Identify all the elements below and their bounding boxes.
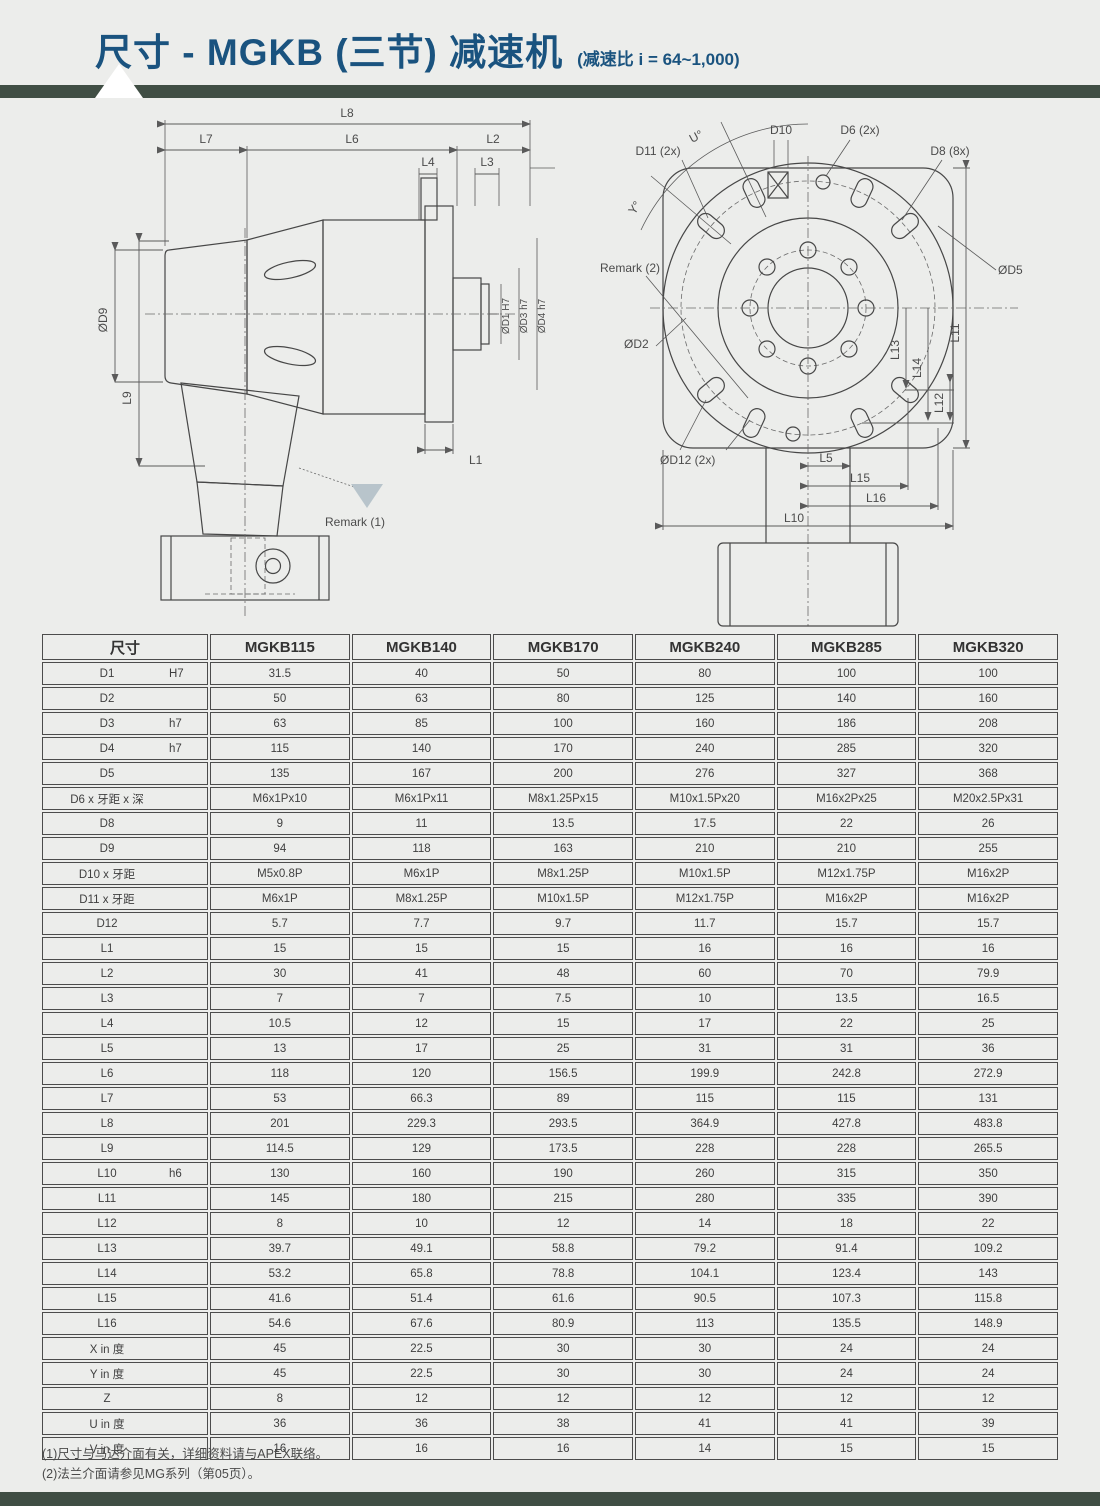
table-row: L10h6130160190260315350 — [42, 1162, 1058, 1185]
value-cell: 107.3 — [777, 1287, 917, 1310]
value-cell: 24 — [777, 1362, 917, 1385]
dim-label: L7 — [45, 1093, 169, 1105]
value-cell: 483.8 — [918, 1112, 1058, 1135]
value-cell: 390 — [918, 1187, 1058, 1210]
dim-label-l1: L1 — [469, 453, 483, 467]
dim-label-d3: ØD3 h7 — [519, 298, 530, 333]
remark2-label: Remark (2) — [600, 261, 660, 275]
footer-accent-bar — [0, 1492, 1100, 1506]
value-cell: 210 — [635, 837, 775, 860]
table-row: D125.77.79.711.715.715.7 — [42, 912, 1058, 935]
white-triangle-marker — [95, 64, 143, 98]
angle-label-y: Y° — [625, 198, 644, 217]
value-cell: 16 — [777, 937, 917, 960]
dim-label: Y in 度 — [45, 1366, 169, 1382]
dim-label: D11 x 牙距 — [45, 891, 169, 907]
callout-d2: ØD2 — [624, 337, 649, 351]
value-cell: 16.5 — [918, 987, 1058, 1010]
dim-label: D3 — [45, 718, 169, 730]
value-cell: 41 — [777, 1412, 917, 1435]
dim-label: U in 度 — [45, 1416, 169, 1432]
value-cell: 30 — [635, 1362, 775, 1385]
value-cell: 130 — [210, 1162, 350, 1185]
dim-label-l7: L7 — [199, 132, 213, 146]
value-cell: 14 — [635, 1437, 775, 1460]
dim-label: L11 — [45, 1193, 169, 1205]
value-cell: 285 — [777, 737, 917, 760]
dim-label-l10: L10 — [784, 511, 804, 525]
value-cell: 24 — [918, 1337, 1058, 1360]
dim-label-l8: L8 — [340, 106, 354, 120]
value-cell: 94 — [210, 837, 350, 860]
value-cell: 186 — [777, 712, 917, 735]
value-cell: 131 — [918, 1087, 1058, 1110]
value-cell: 135.5 — [777, 1312, 917, 1335]
value-cell: 118 — [210, 1062, 350, 1085]
table-row: X in 度4522.530302424 — [42, 1337, 1058, 1360]
value-cell: 12 — [918, 1387, 1058, 1410]
value-cell: 89 — [493, 1087, 633, 1110]
value-cell: 163 — [493, 837, 633, 860]
value-cell: 8 — [210, 1387, 350, 1410]
dim-name-cell: L2 — [42, 962, 208, 985]
value-cell: 11 — [352, 812, 492, 835]
value-cell: 30 — [493, 1337, 633, 1360]
value-cell: 22 — [777, 812, 917, 835]
dim-label: L3 — [45, 993, 169, 1005]
value-cell: 16 — [352, 1437, 492, 1460]
value-cell: 120 — [352, 1062, 492, 1085]
remark1-triangle-icon — [351, 484, 383, 508]
dim-label-l16: L16 — [866, 491, 886, 505]
value-cell: 80 — [635, 662, 775, 685]
dim-label: L8 — [45, 1118, 169, 1130]
value-cell: 350 — [918, 1162, 1058, 1185]
dim-label: D1 — [45, 668, 169, 680]
value-cell: 170 — [493, 737, 633, 760]
dim-label: L2 — [45, 968, 169, 980]
value-cell: M20x2.5Px31 — [918, 787, 1058, 810]
value-cell: M8x1.25Px15 — [493, 787, 633, 810]
value-cell: 17 — [352, 1037, 492, 1060]
value-cell: 327 — [777, 762, 917, 785]
value-cell: 201 — [210, 1112, 350, 1135]
value-cell: 200 — [493, 762, 633, 785]
table-row: L5131725313136 — [42, 1037, 1058, 1060]
dim-label: D8 — [45, 818, 169, 830]
value-cell: 255 — [918, 837, 1058, 860]
value-cell: M6x1Px11 — [352, 787, 492, 810]
value-cell: 53.2 — [210, 1262, 350, 1285]
value-cell: 242.8 — [777, 1062, 917, 1085]
value-cell: 115 — [210, 737, 350, 760]
value-cell: 115 — [635, 1087, 775, 1110]
value-cell: 15 — [352, 937, 492, 960]
value-cell: 11.7 — [635, 912, 775, 935]
value-cell: 12 — [777, 1387, 917, 1410]
value-cell: 14 — [635, 1212, 775, 1235]
dim-name-cell: X in 度 — [42, 1337, 208, 1360]
table-row: L6118120156.5199.9242.8272.9 — [42, 1062, 1058, 1085]
value-cell: 7 — [210, 987, 350, 1010]
dim-label: L6 — [45, 1068, 169, 1080]
column-header-mgkb240: MGKB240 — [635, 634, 775, 660]
dim-label: L15 — [45, 1293, 169, 1305]
value-cell: 36 — [918, 1037, 1058, 1060]
value-cell: 160 — [918, 687, 1058, 710]
value-cell: 145 — [210, 1187, 350, 1210]
dim-label: X in 度 — [45, 1341, 169, 1357]
value-cell: 215 — [493, 1187, 633, 1210]
dim-name-cell: L13 — [42, 1237, 208, 1260]
dim-table-head-row: 尺寸MGKB115MGKB140MGKB170MGKB240MGKB285MGK… — [42, 634, 1058, 660]
value-cell: 70 — [777, 962, 917, 985]
value-cell: 91.4 — [777, 1237, 917, 1260]
dim-label: L5 — [45, 1043, 169, 1055]
value-cell: 156.5 — [493, 1062, 633, 1085]
dim-name-cell: L1 — [42, 937, 208, 960]
value-cell: 315 — [777, 1162, 917, 1185]
dim-label-d9: ØD9 — [96, 307, 110, 332]
table-row: L2304148607079.9 — [42, 962, 1058, 985]
value-cell: 129 — [352, 1137, 492, 1160]
column-header-mgkb285: MGKB285 — [777, 634, 917, 660]
value-cell: 114.5 — [210, 1137, 350, 1160]
value-cell: M16x2P — [918, 862, 1058, 885]
value-cell: 15 — [777, 1437, 917, 1460]
value-cell: M10x1.5Px20 — [635, 787, 775, 810]
dim-label: L4 — [45, 1018, 169, 1030]
value-cell: M16x2P — [918, 887, 1058, 910]
value-cell: 16 — [493, 1437, 633, 1460]
angle-label-u: U° — [687, 127, 706, 146]
table-row: L1281012141822 — [42, 1212, 1058, 1235]
dim-label: L12 — [45, 1218, 169, 1230]
table-row: L410.51215172225 — [42, 1012, 1058, 1035]
value-cell: 199.9 — [635, 1062, 775, 1085]
value-cell: 100 — [918, 662, 1058, 685]
footnote-2: (2)法兰介面请参见MG系列（第05页）。 — [42, 1464, 328, 1484]
value-cell: 31 — [635, 1037, 775, 1060]
dim-name-cell: D2 — [42, 687, 208, 710]
angle-arc — [641, 122, 808, 244]
value-cell: 228 — [777, 1137, 917, 1160]
value-cell: 49.1 — [352, 1237, 492, 1260]
dimension-table: 尺寸MGKB115MGKB140MGKB170MGKB240MGKB285MGK… — [40, 632, 1060, 1462]
value-cell: M6x1P — [210, 887, 350, 910]
value-cell: 160 — [352, 1162, 492, 1185]
dim-name-cell: L9 — [42, 1137, 208, 1160]
dim-name-cell: D12 — [42, 912, 208, 935]
table-row: L1453.265.878.8104.1123.4143 — [42, 1262, 1058, 1285]
value-cell: 335 — [777, 1187, 917, 1210]
dim-tolerance: h6 — [169, 1168, 205, 1180]
table-row: Z81212121212 — [42, 1387, 1058, 1410]
value-cell: 228 — [635, 1137, 775, 1160]
value-cell: 39 — [918, 1412, 1058, 1435]
value-cell: M6x1P — [352, 862, 492, 885]
table-row: D891113.517.52226 — [42, 812, 1058, 835]
dim-name-cell: D4h7 — [42, 737, 208, 760]
value-cell: 66.3 — [352, 1087, 492, 1110]
column-header-mgkb170: MGKB170 — [493, 634, 633, 660]
table-row: L1654.667.680.9113135.5148.9 — [42, 1312, 1058, 1335]
dim-name-cell: L14 — [42, 1262, 208, 1285]
value-cell: 15 — [493, 937, 633, 960]
value-cell: M16x2Px25 — [777, 787, 917, 810]
value-cell: 135 — [210, 762, 350, 785]
value-cell: 48 — [493, 962, 633, 985]
dim-name-cell: D3h7 — [42, 712, 208, 735]
value-cell: 320 — [918, 737, 1058, 760]
table-row: D6 x 牙距 x 深M6x1Px10M6x1Px11M8x1.25Px15M1… — [42, 787, 1058, 810]
value-cell: 36 — [352, 1412, 492, 1435]
value-cell: 7 — [352, 987, 492, 1010]
value-cell: 90.5 — [635, 1287, 775, 1310]
value-cell: 143 — [918, 1262, 1058, 1285]
value-cell: 180 — [352, 1187, 492, 1210]
dim-label: D6 x 牙距 x 深 — [45, 791, 169, 807]
value-cell: 30 — [493, 1362, 633, 1385]
value-cell: 50 — [210, 687, 350, 710]
dim-tolerance: H7 — [169, 668, 205, 680]
dim-label: L1 — [45, 943, 169, 955]
table-row: L11145180215280335390 — [42, 1187, 1058, 1210]
dim-name-cell: D10 x 牙距 — [42, 862, 208, 885]
value-cell: 61.6 — [493, 1287, 633, 1310]
dim-name-cell: L16 — [42, 1312, 208, 1335]
value-cell: 368 — [918, 762, 1058, 785]
value-cell: 7.5 — [493, 987, 633, 1010]
table-row: D2506380125140160 — [42, 687, 1058, 710]
dim-label-l13: L13 — [888, 340, 902, 360]
value-cell: 31 — [777, 1037, 917, 1060]
value-cell: 12 — [635, 1387, 775, 1410]
value-cell: 50 — [493, 662, 633, 685]
value-cell: 10.5 — [210, 1012, 350, 1035]
value-cell: M12x1.75P — [635, 887, 775, 910]
value-cell: 160 — [635, 712, 775, 735]
side-view-drawing: L8 L7 L6 L2 L4 L3 ØD9 L9 L1 ØD1 H7 ØD3 h… — [85, 98, 605, 633]
table-row: D10 x 牙距M5x0.8PM6x1PM8x1.25PM10x1.5PM12x… — [42, 862, 1058, 885]
table-row: D5135167200276327368 — [42, 762, 1058, 785]
value-cell: 115 — [777, 1087, 917, 1110]
value-cell: 364.9 — [635, 1112, 775, 1135]
value-cell: 13.5 — [493, 812, 633, 835]
value-cell: 30 — [210, 962, 350, 985]
value-cell: 427.8 — [777, 1112, 917, 1135]
dim-name-cell: D9 — [42, 837, 208, 860]
value-cell: 15 — [918, 1437, 1058, 1460]
value-cell: 25 — [493, 1037, 633, 1060]
table-row: D994118163210210255 — [42, 837, 1058, 860]
value-cell: M5x0.8P — [210, 862, 350, 885]
dim-label: L13 — [45, 1243, 169, 1255]
value-cell: 10 — [635, 987, 775, 1010]
value-cell: 208 — [918, 712, 1058, 735]
dim-name-cell: Z — [42, 1387, 208, 1410]
value-cell: 104.1 — [635, 1262, 775, 1285]
table-row: D3h76385100160186208 — [42, 712, 1058, 735]
value-cell: 115.8 — [918, 1287, 1058, 1310]
value-cell: 39.7 — [210, 1237, 350, 1260]
dim-label-l5: L5 — [819, 451, 833, 465]
value-cell: 10 — [352, 1212, 492, 1235]
value-cell: 9.7 — [493, 912, 633, 935]
value-cell: M16x2P — [777, 887, 917, 910]
value-cell: 18 — [777, 1212, 917, 1235]
value-cell: 140 — [777, 687, 917, 710]
catalog-page: 尺寸 - MGKB (三节) 减速机 (减速比 i = 64~1,000) — [0, 0, 1100, 1506]
dim-name-cell: L7 — [42, 1087, 208, 1110]
dim-name-cell: L10h6 — [42, 1162, 208, 1185]
value-cell: 12 — [352, 1012, 492, 1035]
callout-d11: D11 (2x) — [635, 144, 680, 158]
value-cell: 60 — [635, 962, 775, 985]
dim-label-l12: L12 — [932, 393, 946, 413]
value-cell: 63 — [210, 712, 350, 735]
dim-name-cell: L3 — [42, 987, 208, 1010]
value-cell: 31.5 — [210, 662, 350, 685]
value-cell: 16 — [635, 937, 775, 960]
footnote-1: (1)尺寸与马达介面有关，详细资料请与APEX联络。 — [42, 1444, 328, 1464]
dim-name-cell: Y in 度 — [42, 1362, 208, 1385]
dim-label: D10 x 牙距 — [45, 866, 169, 882]
table-row: L8201229.3293.5364.9427.8483.8 — [42, 1112, 1058, 1135]
value-cell: M6x1Px10 — [210, 787, 350, 810]
value-cell: 65.8 — [352, 1262, 492, 1285]
value-cell: 25 — [918, 1012, 1058, 1035]
value-cell: 38 — [493, 1412, 633, 1435]
value-cell: 79.2 — [635, 1237, 775, 1260]
page-subtitle: (减速比 i = 64~1,000) — [577, 45, 740, 70]
value-cell: 58.8 — [493, 1237, 633, 1260]
dim-label-l15: L15 — [850, 471, 870, 485]
value-cell: 54.6 — [210, 1312, 350, 1335]
dim-name-cell: D1H7 — [42, 662, 208, 685]
value-cell: 41.6 — [210, 1287, 350, 1310]
value-cell: 51.4 — [352, 1287, 492, 1310]
table-row: L1541.651.461.690.5107.3115.8 — [42, 1287, 1058, 1310]
value-cell: 113 — [635, 1312, 775, 1335]
hidden-bore — [231, 538, 265, 594]
value-cell: 24 — [777, 1337, 917, 1360]
value-cell: 260 — [635, 1162, 775, 1185]
value-cell: 125 — [635, 687, 775, 710]
dimension-table-wrap: 尺寸MGKB115MGKB140MGKB170MGKB240MGKB285MGK… — [40, 632, 1060, 1462]
value-cell: 265.5 — [918, 1137, 1058, 1160]
value-cell: 41 — [635, 1412, 775, 1435]
remark1-label: Remark (1) — [325, 515, 385, 529]
dim-label: D9 — [45, 843, 169, 855]
value-cell: M10x1.5P — [493, 887, 633, 910]
dim-name-cell: L5 — [42, 1037, 208, 1060]
value-cell: 276 — [635, 762, 775, 785]
gearbox-outline — [161, 178, 489, 600]
value-cell: 85 — [352, 712, 492, 735]
callout-d6: D6 (2x) — [840, 123, 879, 137]
value-cell: 5.7 — [210, 912, 350, 935]
dim-name-cell: U in 度 — [42, 1412, 208, 1435]
dim-name-cell: D6 x 牙距 x 深 — [42, 787, 208, 810]
dim-label-l6: L6 — [345, 132, 359, 146]
value-cell: 9 — [210, 812, 350, 835]
dim-label-d4: ØD4 h7 — [537, 298, 548, 333]
dim-label-d1: ØD1 H7 — [501, 298, 512, 335]
callout-d5: ØD5 — [998, 263, 1023, 277]
dim-name-cell: D8 — [42, 812, 208, 835]
value-cell: 17 — [635, 1012, 775, 1035]
column-header-dim: 尺寸 — [42, 634, 208, 660]
value-cell: 140 — [352, 737, 492, 760]
value-cell: 100 — [777, 662, 917, 685]
dim-name-cell: L15 — [42, 1287, 208, 1310]
value-cell: 63 — [352, 687, 492, 710]
dim-label-l3: L3 — [480, 155, 494, 169]
value-cell: 148.9 — [918, 1312, 1058, 1335]
table-row: L1151515161616 — [42, 937, 1058, 960]
value-cell: 41 — [352, 962, 492, 985]
value-cell: 272.9 — [918, 1062, 1058, 1085]
value-cell: 12 — [493, 1212, 633, 1235]
value-cell: 100 — [493, 712, 633, 735]
value-cell: 40 — [352, 662, 492, 685]
value-cell: 15.7 — [777, 912, 917, 935]
value-cell: 36 — [210, 1412, 350, 1435]
dim-label: Z — [45, 1393, 169, 1405]
value-cell: 22.5 — [352, 1362, 492, 1385]
value-cell: 167 — [352, 762, 492, 785]
value-cell: 16 — [918, 937, 1058, 960]
page-title: 尺寸 - MGKB (三节) 减速机 — [95, 22, 563, 76]
value-cell: 80 — [493, 687, 633, 710]
table-row: Y in 度4522.530302424 — [42, 1362, 1058, 1385]
dim-tolerance: h7 — [169, 743, 205, 755]
dim-label-l9: L9 — [120, 391, 134, 405]
table-row: U in 度363638414139 — [42, 1412, 1058, 1435]
dim-name-cell: D5 — [42, 762, 208, 785]
value-cell: 22 — [918, 1212, 1058, 1235]
column-header-mgkb140: MGKB140 — [352, 634, 492, 660]
value-cell: 24 — [918, 1362, 1058, 1385]
table-row: L75366.389115115131 — [42, 1087, 1058, 1110]
dim-label-l14: L14 — [910, 358, 924, 378]
value-cell: 293.5 — [493, 1112, 633, 1135]
value-cell: 190 — [493, 1162, 633, 1185]
dim-label: D2 — [45, 693, 169, 705]
value-cell: 17.5 — [635, 812, 775, 835]
header-accent-bar — [0, 85, 1100, 98]
dim-name-cell: L4 — [42, 1012, 208, 1035]
value-cell: 30 — [635, 1337, 775, 1360]
value-cell: 22 — [777, 1012, 917, 1035]
value-cell: 26 — [918, 812, 1058, 835]
dim-label: L14 — [45, 1268, 169, 1280]
dim-name-cell: L8 — [42, 1112, 208, 1135]
value-cell: 45 — [210, 1337, 350, 1360]
value-cell: 109.2 — [918, 1237, 1058, 1260]
value-cell: M8x1.25P — [352, 887, 492, 910]
value-cell: 15.7 — [918, 912, 1058, 935]
value-cell: 210 — [777, 837, 917, 860]
column-header-mgkb320: MGKB320 — [918, 634, 1058, 660]
value-cell: 118 — [352, 837, 492, 860]
value-cell: M12x1.75P — [777, 862, 917, 885]
table-row: D4h7115140170240285320 — [42, 737, 1058, 760]
value-cell: 240 — [635, 737, 775, 760]
callout-d12: ØD12 (2x) — [660, 453, 715, 467]
value-cell: 13 — [210, 1037, 350, 1060]
